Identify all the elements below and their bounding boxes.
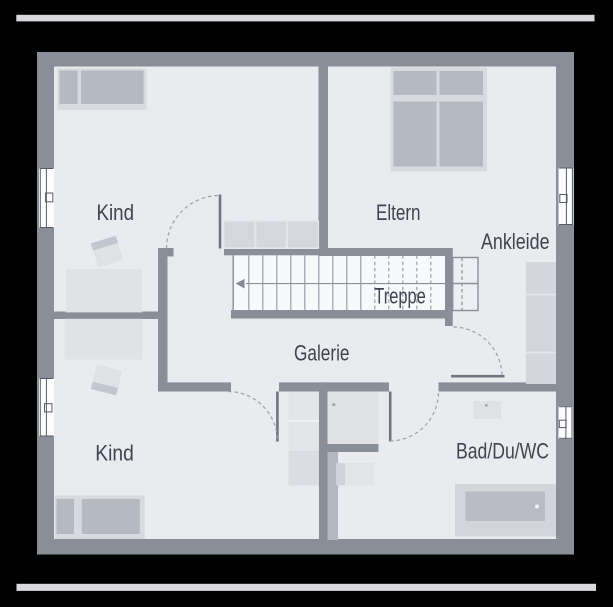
svg-text:Ankleide: Ankleide (481, 229, 550, 254)
svg-text:Galerie: Galerie (294, 341, 350, 366)
svg-text:Treppe: Treppe (374, 284, 426, 309)
svg-text:Kind: Kind (95, 441, 134, 466)
svg-text:Bad/Du/WC: Bad/Du/WC (456, 439, 549, 464)
svg-text:Eltern: Eltern (376, 200, 421, 225)
svg-text:Kind: Kind (97, 200, 135, 225)
